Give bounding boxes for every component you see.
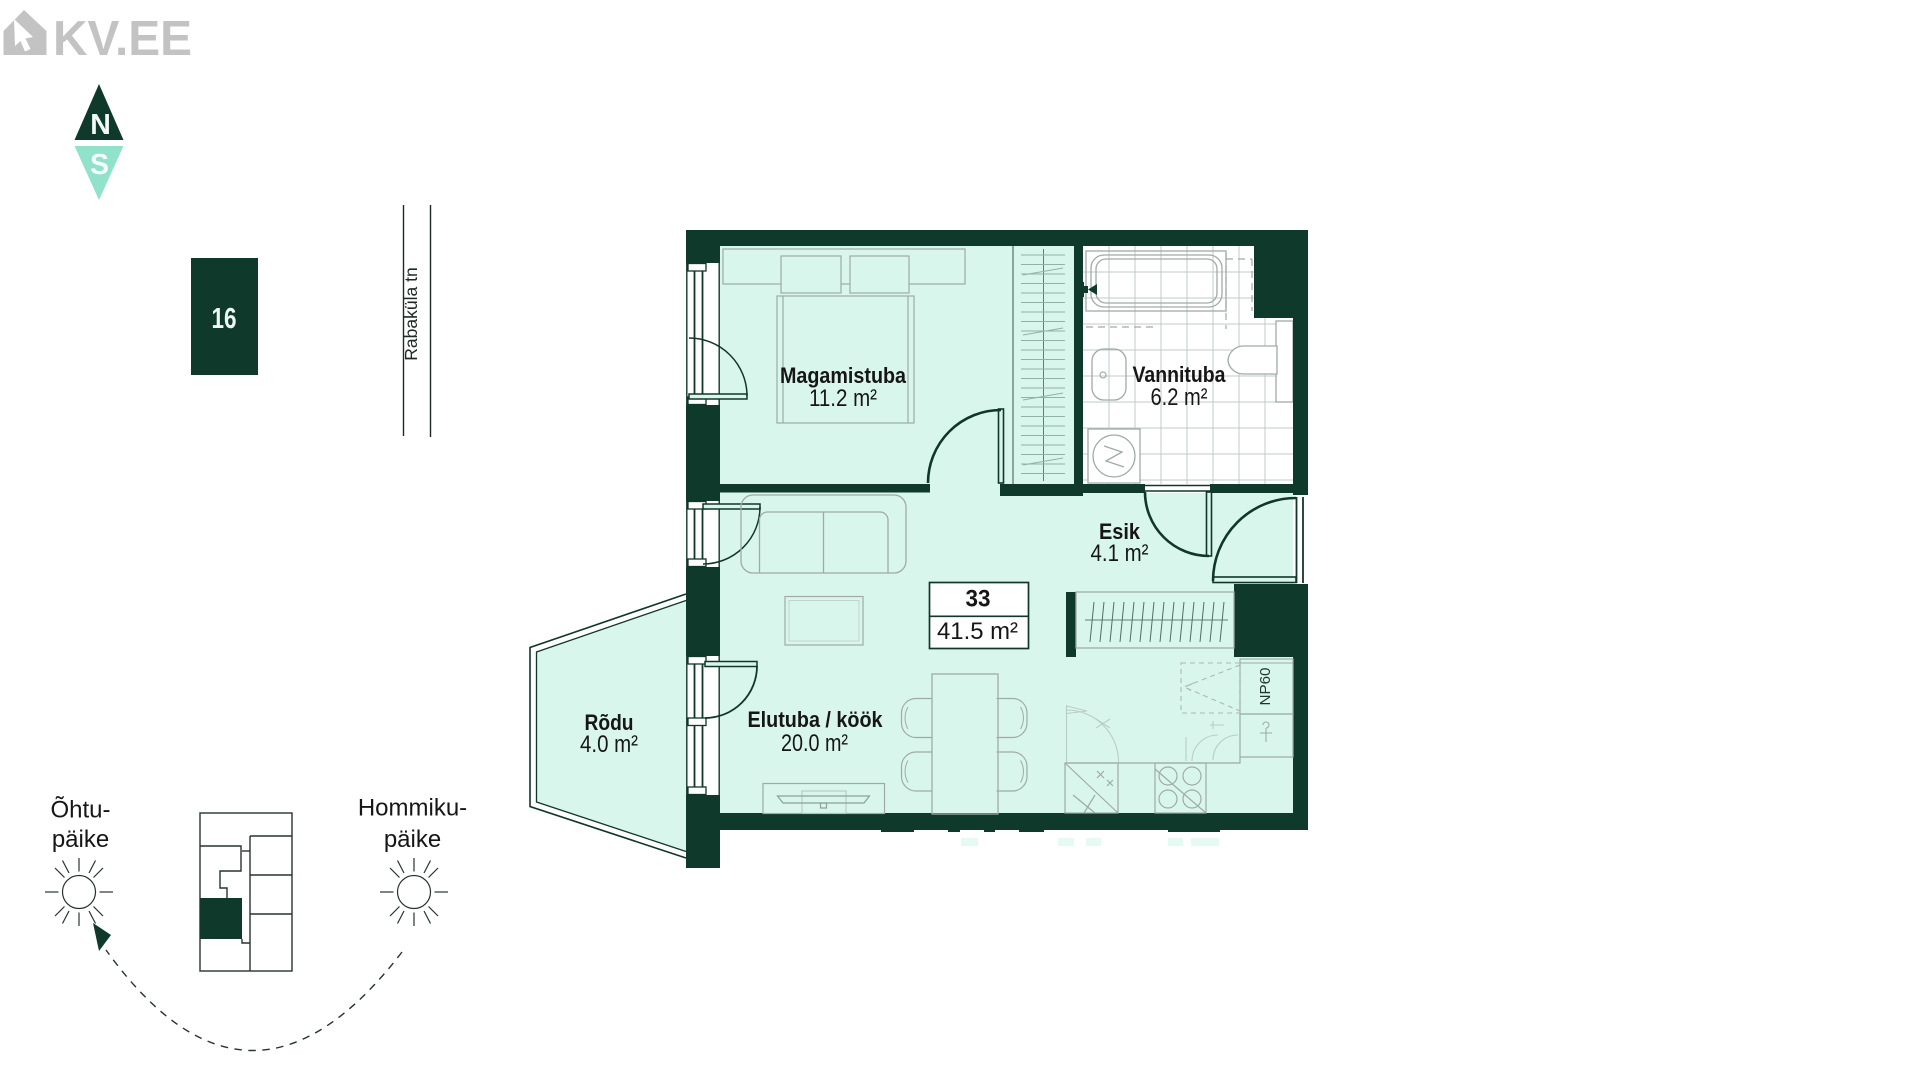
svg-text:päike: päike <box>52 826 109 853</box>
svg-text:päike: päike <box>384 826 441 853</box>
svg-text:S: S <box>90 149 109 181</box>
svg-text:NP60: NP60 <box>1258 668 1274 706</box>
svg-text:41.5 m²: 41.5 m² <box>937 618 1018 645</box>
svg-text:33: 33 <box>966 586 991 613</box>
svg-text:4.0 m²: 4.0 m² <box>580 731 638 758</box>
svg-text:4.1 m²: 4.1 m² <box>1091 540 1149 567</box>
svg-text:6.2 m²: 6.2 m² <box>1151 384 1208 411</box>
svg-text:N: N <box>90 109 111 141</box>
svg-text:11.2 m²: 11.2 m² <box>809 385 877 412</box>
svg-text:Rabaküla tn: Rabaküla tn <box>401 267 421 360</box>
svg-text:16: 16 <box>212 303 237 335</box>
svg-text:Hommiku-: Hommiku- <box>358 795 467 822</box>
svg-text:20.0 m²: 20.0 m² <box>781 730 848 757</box>
svg-text:KV.EE: KV.EE <box>53 12 192 66</box>
svg-text:Elutuba / köök: Elutuba / köök <box>748 707 883 732</box>
svg-text:Õhtu-: Õhtu- <box>50 796 110 824</box>
